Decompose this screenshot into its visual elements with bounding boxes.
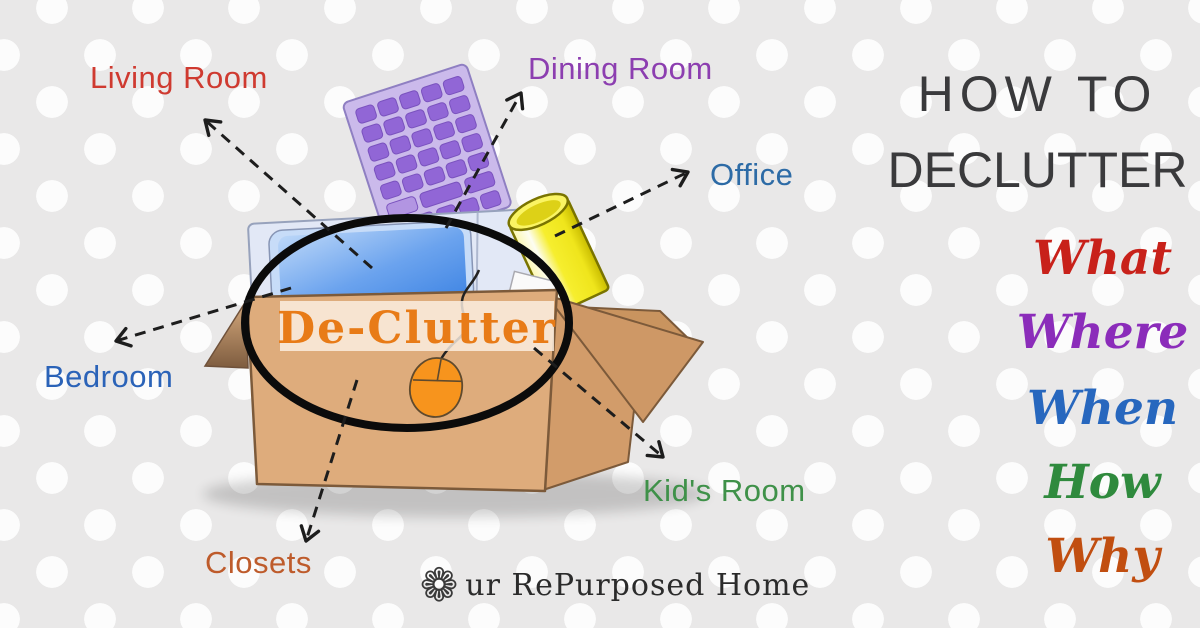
question-how: How [1015, 452, 1190, 514]
label-closets: Closets [205, 545, 312, 581]
question-what: What [1015, 228, 1190, 290]
question-where: Where [1015, 302, 1190, 364]
label-kids-room: Kid's Room [643, 473, 806, 509]
question-when: When [1015, 378, 1190, 440]
declutter-infographic: { "background": { "base_color": "#e9e8e8… [0, 0, 1200, 628]
brand-text: ur RePurposed Home [465, 568, 810, 603]
headline-line-2: DECLUTTER [880, 132, 1195, 208]
headline-line-1: HOW TO [880, 56, 1195, 132]
headline: HOW TO DECLUTTER [880, 56, 1195, 208]
flower-icon: ❁ [420, 562, 459, 608]
label-living-room: Living Room [90, 60, 268, 96]
label-bedroom: Bedroom [44, 359, 173, 395]
question-why: Why [1015, 526, 1190, 588]
brand-logo: ❁ ur RePurposed Home [425, 556, 805, 614]
label-dining-room: Dining Room [528, 51, 713, 87]
declutter-label: De-Clutter [277, 303, 557, 354]
arrow-office [555, 172, 688, 236]
label-office: Office [710, 157, 793, 193]
